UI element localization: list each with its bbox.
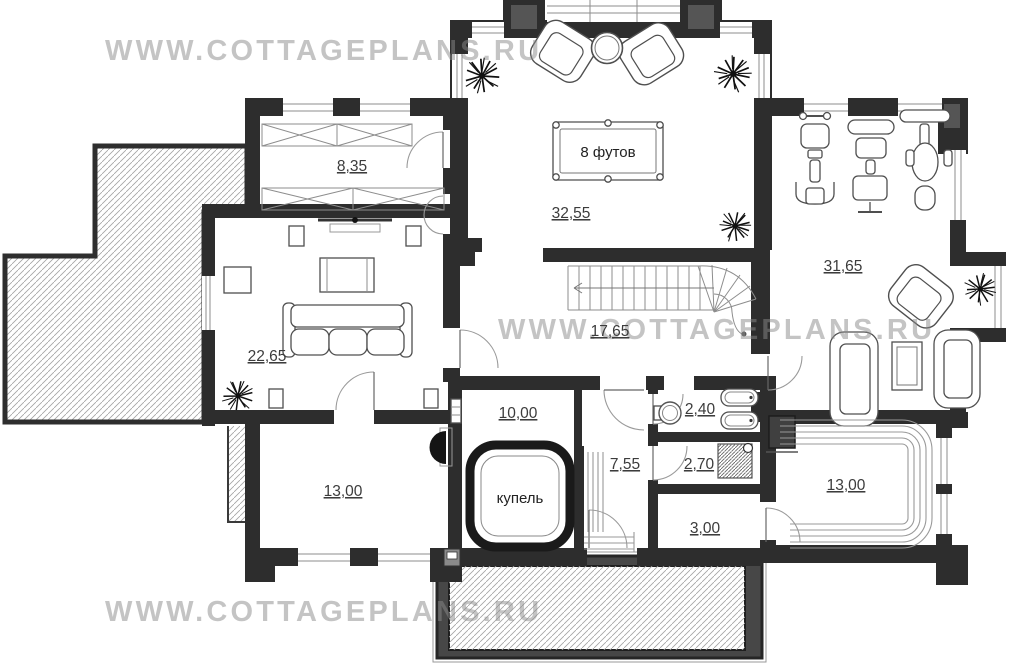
room-area-corridor: 3,00	[690, 520, 721, 537]
side-table	[892, 342, 922, 390]
plunge-pool-label: купель	[497, 490, 544, 507]
bathtub	[721, 412, 758, 429]
floor-plan-page: WWW.COTTAGEPLANS.RU WWW.COTTAGEPLANS.RU …	[0, 0, 1025, 667]
room-area-hall: 17,65	[591, 323, 630, 340]
speaker	[406, 226, 421, 246]
window	[360, 98, 410, 116]
sauna-stove	[766, 416, 798, 452]
room-area-left: 13,00	[324, 483, 363, 500]
speaker	[289, 226, 304, 246]
room-area-gym: 31,65	[824, 258, 863, 275]
window	[754, 54, 770, 98]
watermark-text: WWW.COTTAGEPLANS.RU	[105, 35, 542, 67]
room-area-wardrobe: 8,35	[337, 158, 367, 175]
room-area-bathroom: 2,40	[685, 401, 716, 418]
window	[936, 494, 952, 534]
loveseat	[934, 330, 980, 408]
window	[720, 22, 752, 38]
window	[202, 276, 215, 330]
side-table	[224, 267, 251, 293]
floor-plan: WWW.COTTAGEPLANS.RU WWW.COTTAGEPLANS.RU …	[0, 0, 1025, 667]
loveseat	[830, 332, 878, 426]
bathtub	[721, 389, 758, 406]
floor-speaker	[424, 389, 438, 408]
room-area-pool: 10,00	[499, 405, 538, 422]
window	[990, 266, 1006, 328]
window	[378, 548, 430, 566]
electric-panel-icon	[444, 549, 460, 566]
watermark-text: WWW.COTTAGEPLANS.RU	[498, 314, 935, 346]
window	[298, 548, 350, 566]
sofa	[283, 303, 412, 357]
watermark-text: WWW.COTTAGEPLANS.RU	[105, 596, 542, 628]
bay-window	[547, 0, 680, 22]
wall-fixture	[451, 399, 461, 423]
room-area-living: 22,65	[248, 348, 287, 365]
room-area-sauna: 13,00	[827, 477, 866, 494]
room-area-anteroom: 7,55	[610, 456, 640, 473]
room-area-billiard: 32,55	[552, 205, 591, 222]
shower-tray	[718, 444, 753, 479]
room-area-shower: 2,70	[684, 456, 715, 473]
floor-speaker	[269, 389, 283, 408]
window	[936, 438, 952, 484]
window	[283, 98, 333, 116]
billiard-table-label: 8 футов	[580, 144, 635, 161]
round-table	[592, 33, 623, 64]
coffee-table	[320, 258, 374, 292]
